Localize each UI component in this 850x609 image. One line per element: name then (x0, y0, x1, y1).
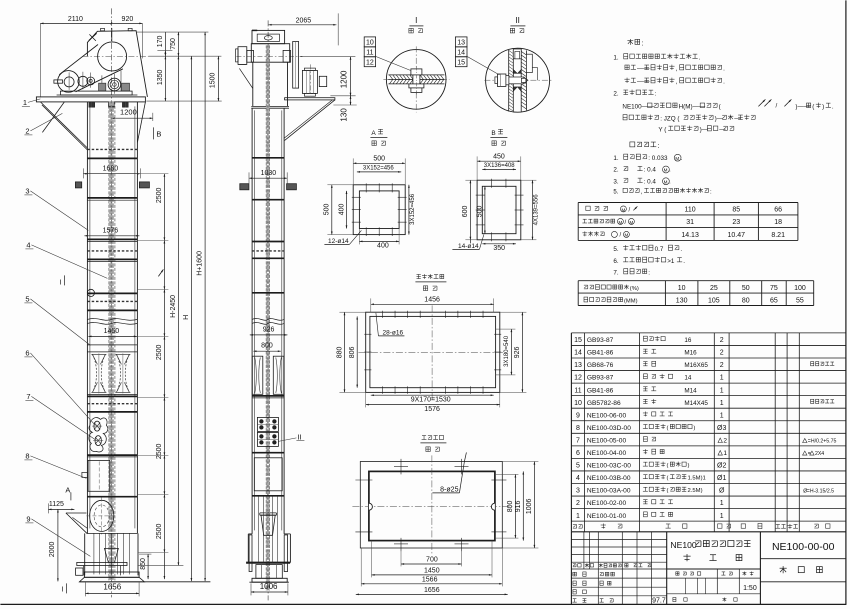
svg-text:H+1600: H+1600 (196, 251, 203, 276)
svg-text:): ) (688, 463, 690, 469)
svg-text:.: . (699, 54, 701, 61)
svg-text:1456: 1456 (424, 296, 440, 303)
svg-text:7: 7 (576, 438, 580, 445)
svg-text:2: 2 (25, 126, 29, 135)
svg-text:M: M (664, 168, 668, 173)
svg-text:(: ( (667, 463, 669, 469)
svg-text:926: 926 (263, 326, 275, 333)
svg-text:700: 700 (426, 556, 438, 563)
svg-text:NE100-02-00: NE100-02-00 (587, 500, 627, 507)
svg-text:II: II (515, 16, 519, 25)
svg-text:1200: 1200 (120, 108, 137, 117)
svg-text:25: 25 (710, 285, 718, 292)
svg-text:450: 450 (493, 154, 505, 161)
svg-text:M16: M16 (684, 350, 697, 357)
svg-text:3: 3 (576, 488, 580, 495)
svg-text:66: 66 (774, 206, 782, 213)
svg-text:1566: 1566 (422, 576, 438, 583)
svg-text:: JZQ (: : JZQ ( (660, 115, 680, 122)
svg-text:2500: 2500 (156, 524, 163, 540)
svg-text:.: . (681, 155, 683, 162)
svg-text:M: M (622, 207, 626, 212)
svg-text:14-: 14- (458, 243, 467, 250)
svg-text:3.: 3. (613, 178, 619, 185)
svg-text:75: 75 (770, 285, 778, 292)
svg-text:M14X45: M14X45 (684, 400, 708, 407)
svg-text:4: 4 (26, 240, 30, 249)
svg-text:2500: 2500 (156, 345, 163, 361)
svg-text:500: 500 (373, 156, 385, 163)
svg-text:II: II (297, 432, 301, 441)
svg-text:850: 850 (140, 558, 147, 570)
svg-text:1: 1 (720, 375, 724, 382)
svg-text:1: 1 (720, 500, 724, 507)
svg-text:3X152=456: 3X152=456 (410, 193, 416, 225)
svg-text:18: 18 (774, 219, 782, 226)
svg-text:)—: )— (715, 115, 724, 122)
svg-text:9: 9 (26, 514, 30, 523)
svg-text:M: M (675, 156, 679, 161)
svg-text:(: ( (667, 425, 669, 431)
svg-text:5: 5 (576, 463, 580, 470)
svg-text:.: . (680, 246, 682, 253)
svg-text:13: 13 (457, 40, 465, 47)
svg-text:10: 10 (678, 285, 686, 292)
svg-text:1: 1 (720, 387, 724, 394)
svg-text:1: 1 (720, 513, 724, 520)
svg-text:H: H (183, 315, 190, 320)
svg-text:=H/0.2+5.75: =H/0.2+5.75 (808, 439, 837, 445)
svg-text:10.47: 10.47 (727, 232, 745, 239)
svg-text:7: 7 (26, 392, 30, 401)
svg-text:.: . (723, 65, 725, 72)
svg-text:2.: 2. (613, 90, 619, 97)
svg-text:1:50: 1:50 (743, 585, 757, 592)
svg-text:/: / (776, 102, 778, 109)
svg-text:GB41-86: GB41-86 (587, 387, 614, 394)
svg-text:: 0.033: : 0.033 (648, 155, 668, 162)
svg-text:28-: 28- (382, 329, 391, 336)
svg-text:B: B (156, 129, 161, 138)
svg-text:,: , (676, 65, 678, 72)
svg-text:1: 1 (720, 412, 724, 419)
svg-text:6: 6 (576, 450, 580, 457)
svg-text:5.: 5. (613, 189, 618, 195)
svg-text:14: 14 (574, 350, 582, 357)
svg-text:.: . (669, 178, 671, 185)
svg-text:1576: 1576 (103, 227, 119, 234)
svg-text:>1: >1 (667, 258, 675, 265)
svg-text:130: 130 (339, 108, 348, 122)
svg-text:A: A (65, 485, 70, 494)
svg-text:1576: 1576 (424, 406, 440, 413)
svg-text:M: M (664, 179, 668, 184)
svg-text:NE100-03D-00: NE100-03D-00 (587, 425, 631, 432)
svg-text:——: —— (637, 65, 650, 72)
svg-text:800: 800 (507, 500, 514, 512)
svg-text::: : (655, 90, 657, 97)
svg-text:NE100-06-00: NE100-06-00 (587, 412, 627, 419)
svg-text:10: 10 (366, 40, 374, 47)
svg-text:800: 800 (261, 343, 273, 350)
svg-text:6: 6 (25, 348, 29, 357)
svg-text:2: 2 (720, 350, 724, 357)
svg-text:50: 50 (742, 285, 750, 292)
svg-text:8: 8 (25, 451, 29, 460)
svg-text:=H-3.15/2.5: =H-3.15/2.5 (807, 489, 834, 495)
svg-text:55: 55 (796, 297, 804, 304)
svg-text:2: 2 (723, 438, 727, 445)
svg-text:8.21: 8.21 (771, 232, 785, 239)
svg-text:NE100-00-00: NE100-00-00 (772, 541, 835, 553)
svg-text:750: 750 (170, 38, 177, 50)
svg-text:1350: 1350 (157, 70, 164, 86)
svg-text:NE100-05-00: NE100-05-00 (587, 438, 627, 445)
svg-text:1450: 1450 (104, 328, 120, 335)
svg-text:5: 5 (25, 294, 29, 303)
svg-text:H-2450: H-2450 (170, 295, 177, 318)
svg-text:M: M (630, 220, 634, 225)
svg-text:10: 10 (574, 400, 582, 407)
svg-text:1: 1 (723, 450, 727, 457)
svg-text:M: M (619, 220, 623, 225)
svg-text:2500: 2500 (156, 444, 163, 460)
svg-text:2: 2 (720, 337, 724, 344)
svg-text:3X180=540: 3X180=540 (504, 335, 510, 367)
svg-text:NE100-04-00: NE100-04-00 (587, 450, 627, 457)
svg-text:1200: 1200 (339, 70, 348, 88)
svg-text:1450: 1450 (424, 567, 440, 574)
svg-text:16: 16 (684, 337, 692, 344)
svg-text:NE100-03C-00: NE100-03C-00 (587, 463, 631, 470)
svg-text:65: 65 (770, 297, 778, 304)
svg-text:97.7: 97.7 (652, 598, 666, 605)
svg-text:I: I (415, 16, 417, 25)
svg-text:2110: 2110 (68, 16, 83, 23)
svg-text:H(M)——: H(M)—— (679, 103, 706, 110)
svg-text:M16X65: M16X65 (684, 362, 708, 369)
svg-text:GB93-87: GB93-87 (587, 375, 614, 382)
svg-text:9X170=1530: 9X170=1530 (411, 396, 451, 403)
svg-text:NE100-03B-00: NE100-03B-00 (587, 475, 631, 482)
svg-text:105: 105 (708, 297, 720, 304)
svg-text:Y (: Y ( (658, 126, 667, 133)
svg-text:15: 15 (574, 337, 582, 344)
svg-text:1: 1 (576, 513, 580, 520)
svg-text:6.: 6. (613, 258, 619, 265)
svg-text:1: 1 (720, 400, 724, 407)
svg-text:11: 11 (366, 50, 373, 57)
svg-text:—: — (719, 126, 726, 133)
svg-text:Ø1: Ø1 (717, 475, 726, 482)
svg-text:5.: 5. (613, 246, 619, 253)
svg-text:1656: 1656 (424, 587, 440, 594)
svg-text:926: 926 (514, 346, 521, 358)
svg-text:2000: 2000 (49, 542, 56, 558)
svg-text:A: A (371, 130, 376, 137)
svg-text:1006: 1006 (526, 499, 533, 515)
svg-text:Ø: Ø (719, 488, 725, 495)
svg-text:7.: 7. (613, 269, 619, 276)
svg-text:80: 80 (742, 297, 750, 304)
svg-text:NE100——: NE100—— (622, 103, 655, 110)
svg-text:,: , (676, 78, 678, 85)
svg-text:.: . (723, 78, 725, 85)
svg-text:400: 400 (338, 203, 345, 215)
svg-text:920: 920 (122, 16, 134, 23)
svg-text::: : (657, 143, 659, 150)
svg-text:1.: 1. (613, 54, 619, 61)
svg-text:2.: 2. (613, 167, 619, 174)
svg-text:500: 500 (324, 203, 331, 215)
svg-text:11: 11 (574, 387, 581, 394)
svg-text:.: . (832, 103, 834, 110)
svg-text:880: 880 (336, 346, 343, 358)
svg-text:Ø3: Ø3 (717, 425, 726, 432)
svg-text:: 0.4: : 0.4 (644, 167, 657, 174)
svg-text:1.: 1. (613, 155, 619, 162)
svg-text:14.13: 14.13 (681, 232, 699, 239)
svg-text:GB5782-86: GB5782-86 (587, 400, 621, 407)
svg-text:(: ( (667, 476, 669, 482)
svg-text:M14: M14 (684, 387, 697, 394)
svg-text:1656: 1656 (103, 583, 121, 592)
svg-text:): ) (693, 425, 695, 431)
svg-text:350: 350 (493, 245, 505, 252)
svg-text:1680: 1680 (103, 165, 119, 172)
svg-text:I: I (59, 279, 61, 286)
svg-text:GB93-87: GB93-87 (587, 337, 614, 344)
svg-text:1: 1 (23, 98, 27, 107)
svg-text:(%): (%) (630, 286, 639, 292)
svg-text:130: 130 (676, 297, 688, 304)
svg-text:.: . (683, 258, 685, 265)
svg-text:8: 8 (576, 425, 580, 432)
svg-text:I: I (61, 586, 63, 593)
svg-text:1006: 1006 (260, 582, 278, 591)
svg-text:9: 9 (576, 412, 580, 419)
svg-text:500: 500 (477, 205, 484, 217)
svg-text:12: 12 (574, 375, 582, 382)
svg-text:4: 4 (576, 475, 580, 482)
svg-text:.: . (669, 167, 671, 174)
svg-text:12-: 12- (328, 238, 337, 245)
svg-text:Ø2: Ø2 (717, 463, 726, 470)
svg-text:100: 100 (794, 285, 806, 292)
svg-text:3: 3 (25, 186, 29, 195)
svg-text:(: ( (667, 488, 669, 494)
svg-text:806: 806 (349, 346, 356, 358)
svg-text:NE100-03A-00: NE100-03A-00 (587, 488, 631, 495)
svg-text:170: 170 (157, 35, 164, 47)
svg-text::: : (648, 269, 650, 276)
svg-text:(MM): (MM) (624, 298, 638, 304)
svg-text:2065: 2065 (296, 17, 312, 24)
svg-text:ø14: ø14 (337, 238, 349, 245)
svg-text:2: 2 (720, 362, 724, 369)
svg-text:): ) (822, 103, 824, 110)
svg-text:1.5M)1: 1.5M)1 (688, 476, 706, 482)
svg-text:15: 15 (457, 60, 465, 67)
svg-text:4X139=556: 4X139=556 (533, 194, 539, 226)
svg-text:1125: 1125 (49, 501, 64, 508)
svg-text:13: 13 (574, 362, 582, 369)
svg-text:: 0.4: : 0.4 (644, 178, 657, 185)
svg-text:3X136=408: 3X136=408 (484, 163, 516, 169)
svg-text:1030: 1030 (261, 170, 277, 177)
svg-text:916: 916 (515, 500, 522, 512)
svg-text:14: 14 (457, 50, 465, 57)
svg-text:0.7: 0.7 (655, 246, 664, 253)
svg-text:2: 2 (576, 500, 580, 507)
svg-text:85: 85 (732, 206, 740, 213)
svg-text:NE100: NE100 (670, 540, 696, 550)
svg-text:110: 110 (685, 206, 696, 213)
svg-text:NE100-01-00: NE100-01-00 (587, 513, 627, 520)
svg-text:ø14: ø14 (467, 243, 479, 250)
svg-text:23: 23 (732, 219, 740, 226)
svg-text:M: M (625, 233, 629, 238)
svg-text:12: 12 (366, 60, 374, 67)
svg-text:14: 14 (684, 375, 692, 382)
svg-text:ø16: ø16 (392, 329, 404, 336)
svg-text:2.5M): 2.5M) (688, 488, 703, 494)
svg-text:——: —— (637, 78, 650, 85)
svg-text:ø25: ø25 (446, 486, 458, 493)
svg-text:GB41-86: GB41-86 (587, 350, 614, 357)
svg-text:GB68-76: GB68-76 (587, 362, 614, 369)
svg-text:400: 400 (377, 242, 389, 249)
svg-text:3X152=456: 3X152=456 (363, 166, 395, 172)
svg-text:1500: 1500 (209, 73, 216, 89)
svg-text:2X4: 2X4 (815, 451, 824, 457)
svg-text:31: 31 (686, 219, 694, 226)
svg-text::: : (641, 40, 643, 47)
svg-text:600: 600 (462, 205, 469, 217)
svg-text:B: B (491, 130, 495, 137)
svg-text:2500: 2500 (156, 188, 163, 204)
